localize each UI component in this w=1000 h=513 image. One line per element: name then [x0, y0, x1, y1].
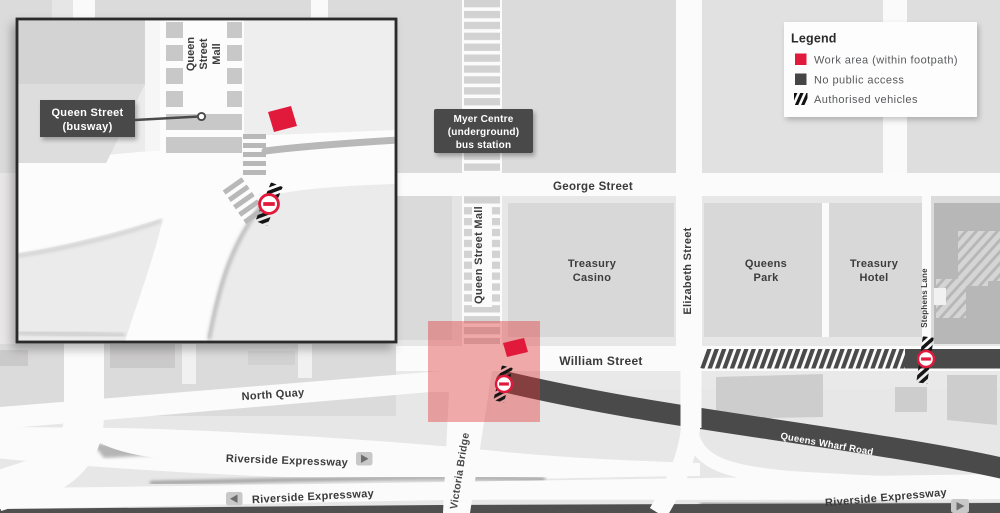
- svg-text:(busway): (busway): [62, 121, 112, 133]
- svg-text:bus station: bus station: [456, 140, 512, 151]
- svg-text:No public access: No public access: [814, 75, 904, 87]
- svg-text:Treasury: Treasury: [850, 258, 899, 270]
- svg-text:Queen: Queen: [185, 37, 197, 72]
- svg-text:Legend: Legend: [791, 32, 837, 46]
- svg-text:Elizabeth Street: Elizabeth Street: [682, 227, 694, 314]
- svg-text:Queens: Queens: [745, 258, 787, 270]
- svg-text:Hotel: Hotel: [860, 272, 889, 284]
- svg-text:William Street: William Street: [559, 354, 642, 368]
- svg-text:Park: Park: [753, 272, 779, 284]
- svg-text:Treasury: Treasury: [568, 258, 617, 270]
- svg-text:Street: Street: [198, 38, 210, 70]
- svg-text:Stephens Lane: Stephens Lane: [920, 268, 929, 328]
- svg-text:Casino: Casino: [573, 272, 611, 284]
- svg-text:Queen Street: Queen Street: [51, 107, 123, 119]
- svg-text:Work area (within footpath): Work area (within footpath): [814, 55, 958, 67]
- svg-text:(underground): (underground): [448, 127, 519, 138]
- svg-text:Mall: Mall: [211, 43, 223, 64]
- svg-text:Myer Centre: Myer Centre: [454, 114, 514, 125]
- svg-text:George Street: George Street: [553, 181, 633, 193]
- svg-text:Queen Street Mall: Queen Street Mall: [473, 206, 485, 304]
- svg-text:Authorised vehicles: Authorised vehicles: [814, 94, 918, 106]
